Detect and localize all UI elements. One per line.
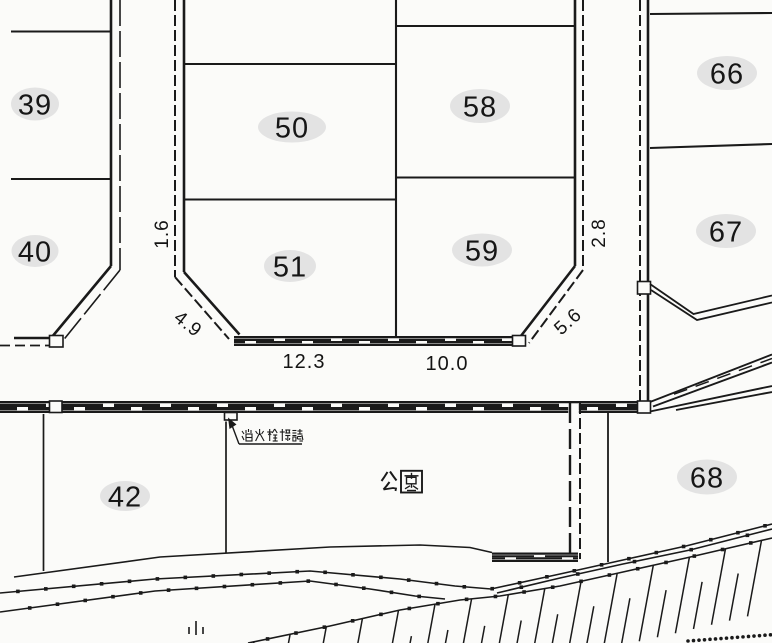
svg-text:50: 50 xyxy=(275,112,309,144)
svg-text:66: 66 xyxy=(710,58,744,90)
svg-text:39: 39 xyxy=(18,89,52,121)
svg-text:42: 42 xyxy=(108,481,142,513)
svg-text:58: 58 xyxy=(463,91,497,123)
svg-text:59: 59 xyxy=(465,235,499,267)
svg-text:12.3: 12.3 xyxy=(283,351,326,373)
svg-text:40: 40 xyxy=(18,236,52,268)
svg-text:1.6: 1.6 xyxy=(152,219,173,248)
svg-text:68: 68 xyxy=(690,462,724,494)
svg-text:51: 51 xyxy=(273,251,307,283)
svg-text:2.8: 2.8 xyxy=(589,218,610,247)
svg-text:10.0: 10.0 xyxy=(426,353,469,375)
svg-text:67: 67 xyxy=(709,216,743,248)
